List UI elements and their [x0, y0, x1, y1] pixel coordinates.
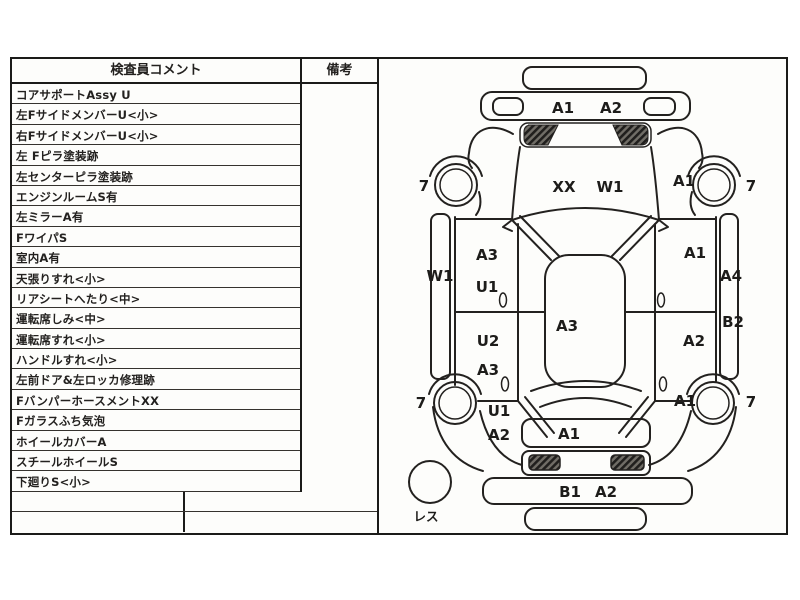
cowl-line — [512, 208, 659, 220]
comment-row: 運転席しみ<中> — [12, 308, 300, 328]
wheel-code: 7 — [746, 177, 756, 195]
tail-light-left — [529, 455, 560, 470]
rear-right-wheel-inner — [697, 387, 729, 419]
a-pillar-right-inner — [612, 216, 651, 256]
rear-bumper-code-right: A2 — [595, 483, 617, 501]
front-left-wheel-inner — [440, 169, 472, 201]
rear-bumper-code-left: B1 — [559, 483, 581, 501]
remarks-column-header: 備考 — [302, 59, 377, 82]
spare-tire-circle — [409, 461, 451, 503]
right-rocker-strip — [720, 214, 738, 379]
door-handle — [658, 293, 665, 307]
grille-hatch-left — [524, 125, 558, 145]
remarks-cell-empty — [302, 84, 377, 492]
sheet-border: 検査員コメント 備考 コアサポートAssy U 左FサイドメンバーU<小> 右F… — [10, 57, 788, 535]
left-front-door-code-lower: U1 — [476, 278, 499, 296]
grille-hatch-right — [613, 125, 648, 145]
spare-tire-label: レス — [413, 509, 438, 524]
comment-row: ホイールカバーA — [12, 431, 300, 451]
scanned-inspection-sheet: 検査員コメント 備考 コアサポートAssy U 左FサイドメンバーU<小> 右F… — [0, 0, 800, 600]
vehicle-damage-diagram: A1 A2 XX W1 — [379, 59, 786, 533]
tail-light-right — [611, 455, 644, 470]
rear-left-wheel-inner — [439, 387, 471, 419]
table-footer-rows — [12, 492, 377, 533]
left-rear-door-code-lower: A3 — [477, 361, 499, 379]
right-rear-door-code: A2 — [683, 332, 705, 350]
right-front-door-code: A1 — [684, 244, 706, 262]
left-quarter-code-lower: A2 — [488, 426, 510, 444]
rear-bumper-lower — [525, 508, 646, 530]
front-left-wheel — [435, 164, 477, 206]
front-left-fender — [468, 128, 513, 168]
front-right-fender-code: A1 — [673, 172, 695, 190]
right-sill-code-lower: B2 — [722, 313, 744, 331]
a-pillar-right — [620, 220, 659, 260]
comment-row: ハンドルすれ<小> — [12, 349, 300, 369]
comment-row: 運転席すれ<小> — [12, 329, 300, 349]
door-handle — [500, 293, 507, 307]
wheels: 7 7 7 7 — [416, 156, 756, 424]
door-handle — [660, 377, 667, 391]
rear-end: A1 B1 A2 レス — [409, 419, 692, 530]
hood-code-right: W1 — [597, 178, 624, 196]
hood-code-left: XX — [552, 178, 576, 196]
left-front-door-code-upper: A3 — [476, 246, 498, 264]
inspector-comments-table: 検査員コメント 備考 コアサポートAssy U 左FサイドメンバーU<小> 右F… — [12, 59, 379, 533]
comment-row: 左FサイドメンバーU<小> — [12, 104, 300, 124]
rear-glass — [518, 381, 655, 437]
comment-row: リアシートへたり<中> — [12, 288, 300, 308]
empty-row — [12, 492, 377, 512]
comment-row: 下廻りS<小> — [12, 471, 300, 491]
footer-divider — [183, 512, 185, 532]
front-left-fender-inner — [476, 192, 480, 215]
rear-right-quarter-inner — [649, 411, 691, 465]
hood-edge-right — [651, 147, 659, 220]
mirror-right — [659, 220, 668, 231]
comments-column-header: 検査員コメント — [12, 59, 302, 82]
mirror-left — [503, 220, 512, 231]
left-rocker-code: W1 — [427, 267, 454, 285]
wheel-code: 7 — [416, 394, 426, 412]
headlight-left — [493, 98, 523, 115]
wheel-code: 7 — [746, 393, 756, 411]
comment-row: FワイパS — [12, 227, 300, 247]
left-quarter-code-upper: U1 — [488, 402, 511, 420]
rear-bumper — [483, 478, 692, 504]
footer-divider — [183, 492, 185, 511]
rear-left-quarter-outer — [433, 407, 483, 471]
wheel-code: 7 — [419, 177, 429, 195]
sills: W1 A4 B2 — [427, 214, 744, 379]
rear-left-wheel — [434, 382, 476, 424]
comment-row: 右FサイドメンバーU<小> — [12, 125, 300, 145]
front-bumper-code-right: A2 — [600, 99, 622, 117]
comment-row: Fガラスふち気泡 — [12, 410, 300, 430]
front-bumper-top — [523, 67, 646, 89]
comment-row: コアサポートAssy U — [12, 84, 300, 104]
comment-row: 室内A有 — [12, 247, 300, 267]
hood-edge-left — [512, 147, 520, 220]
table-header-row: 検査員コメント 備考 — [12, 59, 377, 84]
cabin: A3 U1 U2 A3 A3 A1 A2 — [455, 217, 716, 401]
trunk-code: A1 — [558, 425, 580, 443]
comment-row: スチールホイールS — [12, 451, 300, 471]
front-right-wheel-inner — [698, 169, 730, 201]
rear-window-bottom — [540, 398, 631, 407]
front-bumper-code-left: A1 — [552, 99, 574, 117]
trunk-lid — [522, 419, 650, 447]
right-sill-code-upper: A4 — [720, 267, 742, 285]
left-rear-door-code-upper: U2 — [477, 332, 500, 350]
door-handle — [502, 377, 509, 391]
roof-code: A3 — [556, 317, 578, 335]
front-right-fender-inner — [691, 192, 695, 215]
rear-right-wheel — [692, 382, 734, 424]
comment-row: 左ミラーA有 — [12, 206, 300, 226]
comment-row: エンジンルームS有 — [12, 186, 300, 206]
left-rocker-strip — [431, 214, 450, 379]
front-right-wheel — [693, 164, 735, 206]
comment-row: 左 Fピラ塗装跡 — [12, 145, 300, 165]
comment-row: 天張りすれ<小> — [12, 268, 300, 288]
empty-row — [12, 512, 377, 532]
comment-row: 左センターピラ塗装跡 — [12, 166, 300, 186]
headlight-right — [644, 98, 675, 115]
comment-row: 左前ドア&左ロッカ修理跡 — [12, 369, 300, 389]
table-body: コアサポートAssy U 左FサイドメンバーU<小> 右FサイドメンバーU<小>… — [12, 84, 377, 492]
comment-row: FバンパーホースメントXX — [12, 390, 300, 410]
hood-windshield: XX W1 — [503, 147, 668, 260]
a-pillar-left-inner — [520, 216, 559, 256]
comments-column: コアサポートAssy U 左FサイドメンバーU<小> 右FサイドメンバーU<小>… — [12, 84, 302, 492]
front-end: A1 A2 — [481, 67, 690, 147]
